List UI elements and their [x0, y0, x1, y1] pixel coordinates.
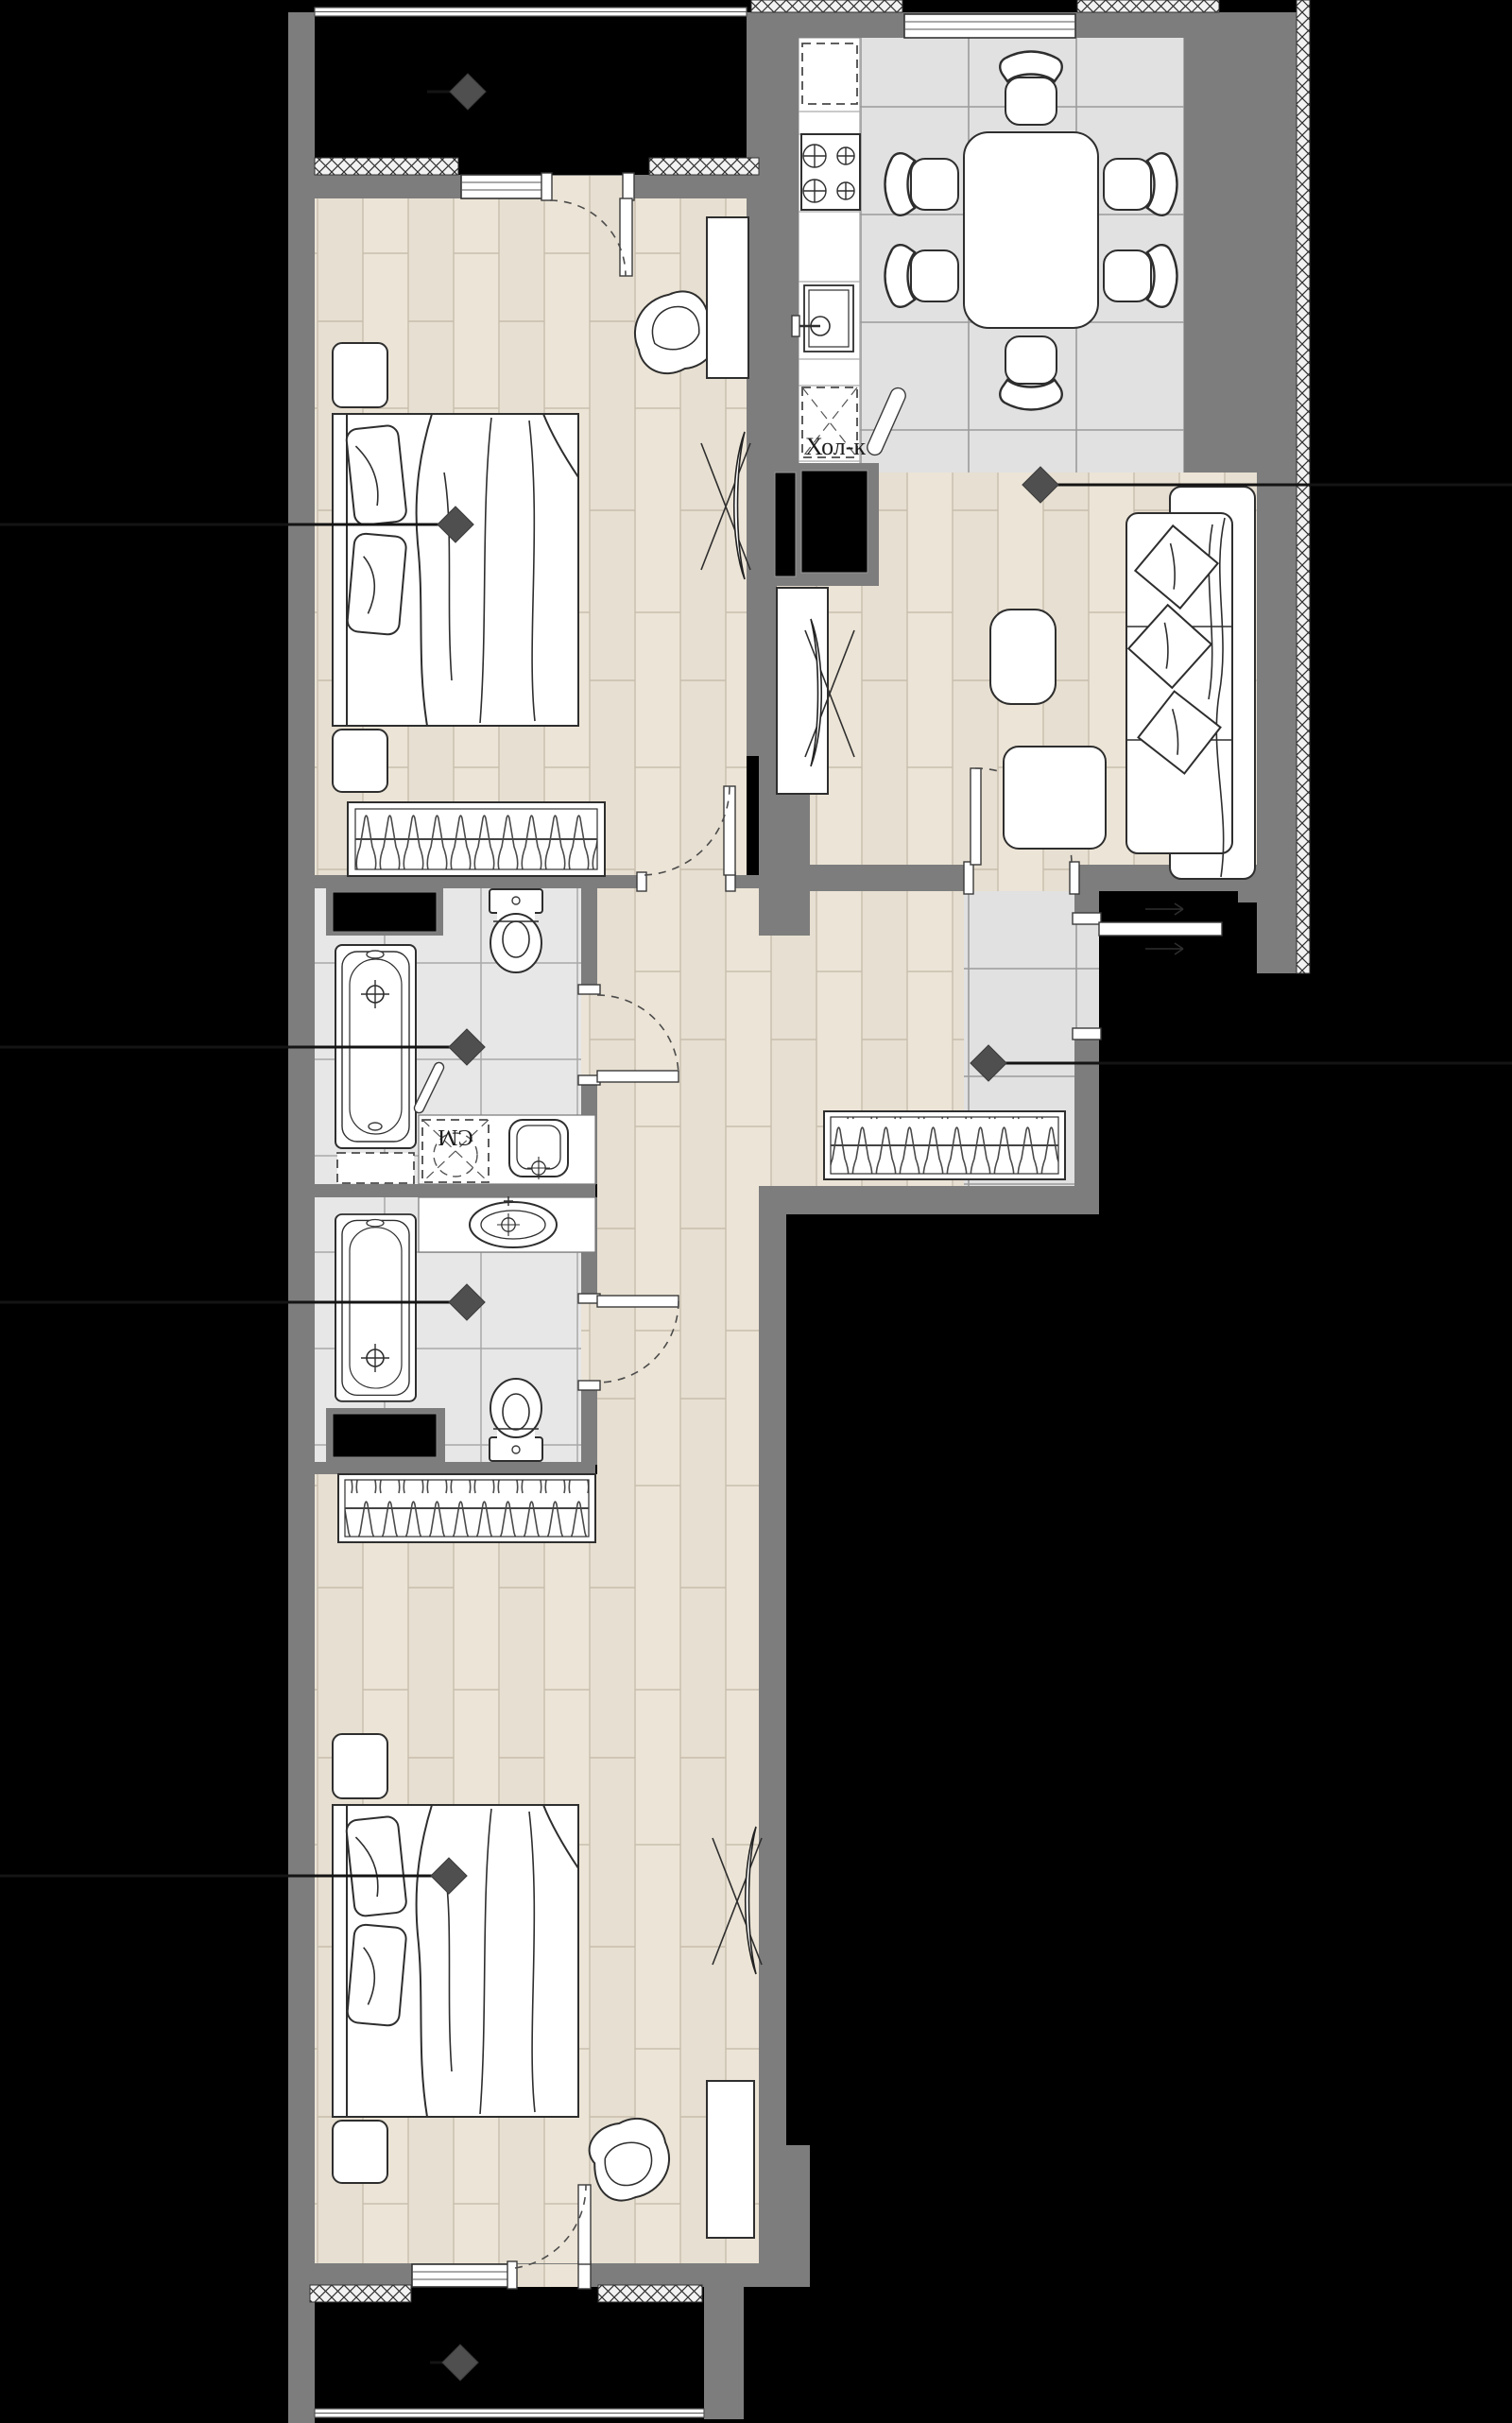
- door-swing-arrow: [1145, 903, 1183, 915]
- room-hallway: [824, 1111, 1065, 1179]
- entrance-opening: [1074, 924, 1099, 1030]
- wall-balcony-bottom-right: [704, 2287, 744, 2419]
- wall-kitchen-left: [747, 38, 799, 473]
- insulation-hatch: [649, 158, 759, 175]
- insulation-hatch: [751, 0, 902, 12]
- marker-balcony-bottom: [430, 2345, 478, 2380]
- dining-chair: [1104, 153, 1177, 215]
- floor-corridor: [597, 1186, 759, 1474]
- washing-machine-label: СМ: [438, 1125, 472, 1149]
- door-leaf: [971, 768, 981, 865]
- window: [904, 14, 1075, 38]
- insulation-hatch: [598, 2285, 702, 2302]
- door-opening: [971, 865, 1074, 891]
- wall-living-left: [747, 586, 777, 756]
- wall-bedroom2-top: [315, 1462, 595, 1474]
- window: [412, 2264, 512, 2287]
- kitchen-sink: [804, 285, 853, 352]
- insulation-hatch: [310, 2285, 411, 2302]
- door-opening: [550, 176, 626, 198]
- wall-hall-bottom: [759, 1186, 1099, 1214]
- wall-right-exterior: [1257, 12, 1302, 973]
- vent-shaft: [333, 892, 437, 932]
- door-opening: [644, 875, 728, 888]
- desk: [707, 2081, 754, 2238]
- door-leaf: [597, 1296, 679, 1307]
- vent-shaft: [775, 473, 796, 576]
- door-opening: [581, 992, 597, 1077]
- entrance-door-leaf: [1099, 922, 1222, 936]
- coffee-table: [990, 610, 1056, 704]
- wall-left-exterior: [288, 12, 315, 2423]
- floor-plan-canvas: Хол-к СМ: [0, 0, 1512, 2423]
- door-leaf: [724, 786, 735, 875]
- dining-chair: [1000, 336, 1062, 410]
- door-opening: [515, 2264, 584, 2287]
- door-leaf: [620, 198, 632, 276]
- fridge-label: Хол-к: [805, 433, 866, 460]
- dining-table: [964, 132, 1098, 328]
- dining-chair: [885, 245, 959, 307]
- room-tag-diamond-icon: [450, 74, 486, 110]
- wall-corridor-right: [759, 1212, 786, 2263]
- door-swing-arrow: [1145, 943, 1183, 954]
- bathtub: [335, 1214, 416, 1401]
- wall-living-bottom-left: [810, 865, 971, 891]
- floor-plan: Хол-к СМ: [0, 0, 1512, 2423]
- door-leaf: [578, 2185, 591, 2264]
- marker-balcony-top: [427, 74, 486, 110]
- ottoman: [1004, 747, 1106, 849]
- dining-chair: [1000, 52, 1062, 126]
- dishwasher-dashed: [802, 43, 857, 104]
- door-opening: [581, 1301, 597, 1383]
- wall-bathrooms-divider: [315, 1184, 595, 1197]
- insulation-hatch: [315, 158, 458, 175]
- dining-chair: [885, 153, 959, 215]
- vent-shaft: [801, 471, 868, 573]
- toilet-bowl: [490, 914, 541, 972]
- vent-shaft: [333, 1414, 437, 1457]
- window: [461, 175, 548, 198]
- insulation-hatch: [1077, 0, 1219, 12]
- door-leaf: [597, 1071, 679, 1082]
- desk: [707, 217, 748, 378]
- room-tag-diamond-icon: [442, 2345, 478, 2380]
- dining-chair: [1104, 245, 1177, 307]
- wall-hall-right-bottom: [1074, 1030, 1099, 1186]
- insulation-hatch: [1297, 0, 1310, 973]
- cabinet-dashed: [337, 1153, 414, 1183]
